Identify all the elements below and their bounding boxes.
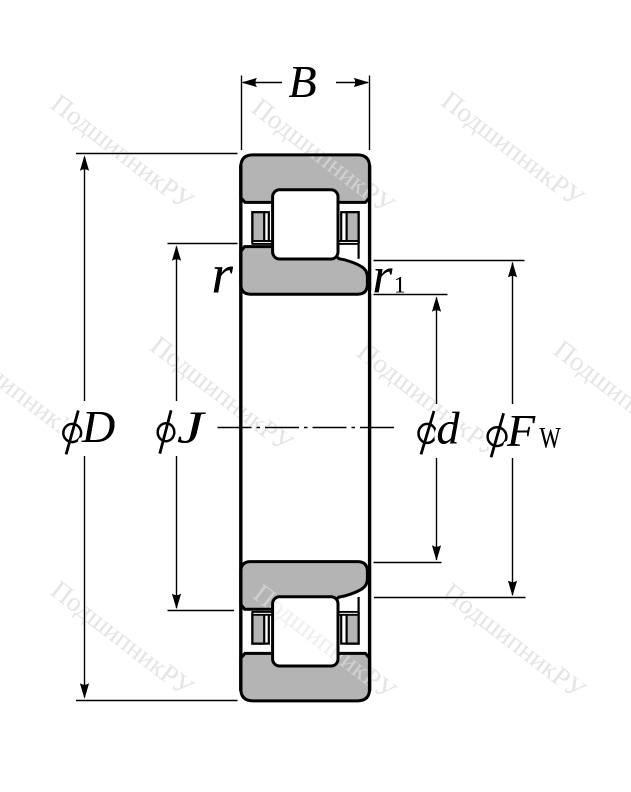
svg-text:r: r	[212, 243, 234, 304]
svg-text:W: W	[540, 421, 561, 454]
svg-text:J: J	[177, 401, 206, 453]
svg-text:1: 1	[394, 272, 405, 297]
svg-text:r: r	[373, 248, 393, 304]
svg-text:F: F	[506, 405, 536, 456]
svg-text:B: B	[289, 56, 317, 107]
